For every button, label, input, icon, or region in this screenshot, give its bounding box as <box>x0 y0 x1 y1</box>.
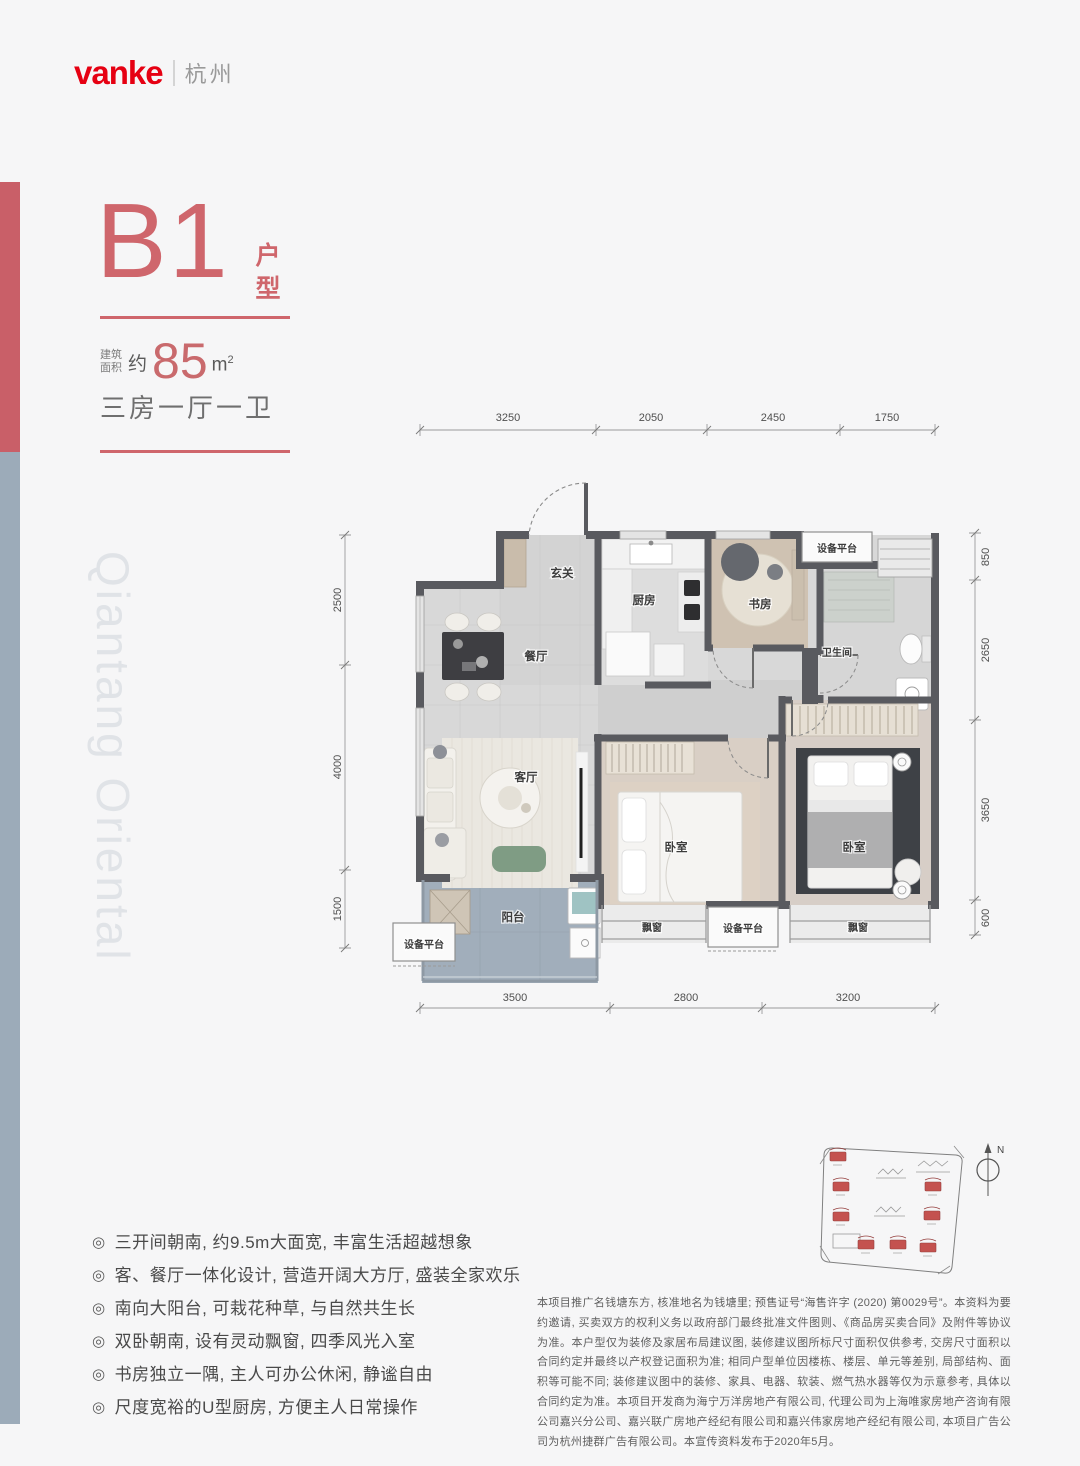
dim-bottom-2: 2800 <box>674 992 698 1004</box>
kitchen-sink <box>630 544 672 564</box>
dim-top-1: 3250 <box>496 412 520 424</box>
area-prefix-line2: 面积 <box>100 362 122 374</box>
feature-text: 双卧朝南, 设有灵动飘窗, 四季风光入室 <box>115 1325 416 1358</box>
room-label-bay2: 飘窗 <box>848 921 868 934</box>
feature-item: ◎三开间朝南, 约9.5m大面宽, 丰富生活超越想象 <box>92 1226 522 1259</box>
feature-text: 客、餐厅一体化设计, 营造开阔大方厅, 盛装全家欢乐 <box>115 1259 521 1292</box>
dining-table <box>442 632 504 680</box>
area-prefix-line1: 建筑 <box>100 349 122 361</box>
area-value: 85 <box>152 341 208 382</box>
room-label-bedroom2: 卧室 <box>843 840 866 854</box>
feature-item: ◎书房独立一隅, 主人可办公休闲, 静谧自由 <box>92 1358 522 1391</box>
feature-item: ◎南向大阳台, 可栽花种草, 与自然共生长 <box>92 1292 522 1325</box>
entry-cabinet <box>504 539 526 587</box>
louver-window <box>878 539 932 577</box>
feature-text: 尺度宽裕的U型厨房, 方便主人日常操作 <box>115 1391 418 1424</box>
unit-name-suffix: 户型 <box>248 242 284 308</box>
red-buildings <box>830 1148 941 1256</box>
room-label-equip-bl: 设备平台 <box>404 938 444 951</box>
bullet-icon: ◎ <box>92 1391 106 1424</box>
feature-text: 书房独立一隅, 主人可办公休闲, 静谧自由 <box>115 1358 433 1391</box>
compass-n-label: N <box>997 1145 1004 1156</box>
room-label-balcony: 阳台 <box>502 910 525 924</box>
bullet-icon: ◎ <box>92 1259 106 1292</box>
bullet-icon: ◎ <box>92 1226 106 1259</box>
feature-item: ◎双卧朝南, 设有灵动飘窗, 四季风光入室 <box>92 1325 522 1358</box>
toilet <box>900 634 922 664</box>
area-unit-m: m <box>212 354 228 375</box>
room-label-equip-tr: 设备平台 <box>817 542 857 555</box>
area-unit: m2 <box>212 354 234 376</box>
room-label-living: 客厅 <box>514 770 538 784</box>
feature-text: 南向大阳台, 可栽花种草, 与自然共生长 <box>115 1292 416 1325</box>
unit-layout: 三房一厅一卫 <box>100 388 274 425</box>
left-accent-bar-red <box>0 182 20 452</box>
stove-burner <box>684 580 700 596</box>
unit-name: B1 <box>96 188 230 294</box>
fridge <box>606 632 650 676</box>
vanke-logo-text: vanke <box>74 56 163 89</box>
site-plan: N <box>808 1122 1018 1287</box>
room-label-study: 书房 <box>749 597 772 611</box>
dim-left-2: 4000 <box>332 755 344 779</box>
outline-buildings <box>833 1161 950 1248</box>
bullet-icon: ◎ <box>92 1325 106 1358</box>
room-label-kitchen: 厨房 <box>633 593 656 607</box>
dim-left-1: 2500 <box>332 588 344 612</box>
dim-left-3: 1500 <box>332 897 344 921</box>
dim-right-4: 600 <box>980 909 990 927</box>
feature-text: 三开间朝南, 约9.5m大面宽, 丰富生活超越想象 <box>115 1226 473 1259</box>
dim-right-1: 850 <box>980 548 990 566</box>
dim-top-4: 1750 <box>875 412 899 424</box>
bullet-icon: ◎ <box>92 1358 106 1391</box>
project-watermark: Qiantang Oriental <box>86 551 140 963</box>
stove-burner <box>684 604 700 620</box>
room-label-bedroom1: 卧室 <box>665 840 688 854</box>
bench <box>492 846 546 872</box>
compass-icon: N <box>977 1143 1004 1196</box>
room-label-entry: 玄关 <box>551 566 574 580</box>
floor-plan: 3250 2050 2450 1750 3500 2800 3200 2500 … <box>330 400 990 1030</box>
wardrobe <box>786 704 918 736</box>
area-prefix: 建筑 面积 <box>100 349 122 377</box>
site-boundary <box>821 1148 962 1273</box>
dim-bottom-3: 3200 <box>836 992 860 1004</box>
room-label-dining: 餐厅 <box>524 649 548 663</box>
area-unit-sup: 2 <box>227 354 233 366</box>
shower-area <box>824 572 894 622</box>
brand-city: 杭州 <box>185 57 235 89</box>
study-chair <box>721 543 759 581</box>
room-label-equip-bm: 设备平台 <box>723 922 763 935</box>
room-label-bay1: 飘窗 <box>642 921 662 934</box>
unit-area: 建筑 面积 约 85 m2 <box>100 341 234 382</box>
feature-item: ◎客、餐厅一体化设计, 营造开阔大方厅, 盛装全家欢乐 <box>92 1259 522 1292</box>
dim-top-2: 2050 <box>639 412 663 424</box>
feature-list: ◎三开间朝南, 约9.5m大面宽, 丰富生活超越想象 ◎客、餐厅一体化设计, 营… <box>92 1226 522 1424</box>
brand-logo: vanke 杭州 <box>74 56 235 89</box>
dim-right-3: 3650 <box>980 798 990 822</box>
left-accent-bar-blue <box>0 452 20 1424</box>
dim-right-2: 2650 <box>980 638 990 662</box>
room-label-bath: 卫生间 <box>822 646 852 659</box>
entrance-door-arc <box>529 483 586 535</box>
feature-item: ◎尺度宽裕的U型厨房, 方便主人日常操作 <box>92 1391 522 1424</box>
logo-divider <box>173 60 175 86</box>
title-rule-bottom <box>100 450 290 453</box>
dim-top-3: 2450 <box>761 412 785 424</box>
legal-disclaimer: 本项目推广名钱塘东方, 核准地名为钱塘里; 预售证号“海售许字 (2020) 第… <box>537 1294 1011 1452</box>
area-approx: 约 <box>128 349 147 376</box>
title-rule-top <box>100 316 290 319</box>
bullet-icon: ◎ <box>92 1292 106 1325</box>
dim-bottom-1: 3500 <box>503 992 527 1004</box>
